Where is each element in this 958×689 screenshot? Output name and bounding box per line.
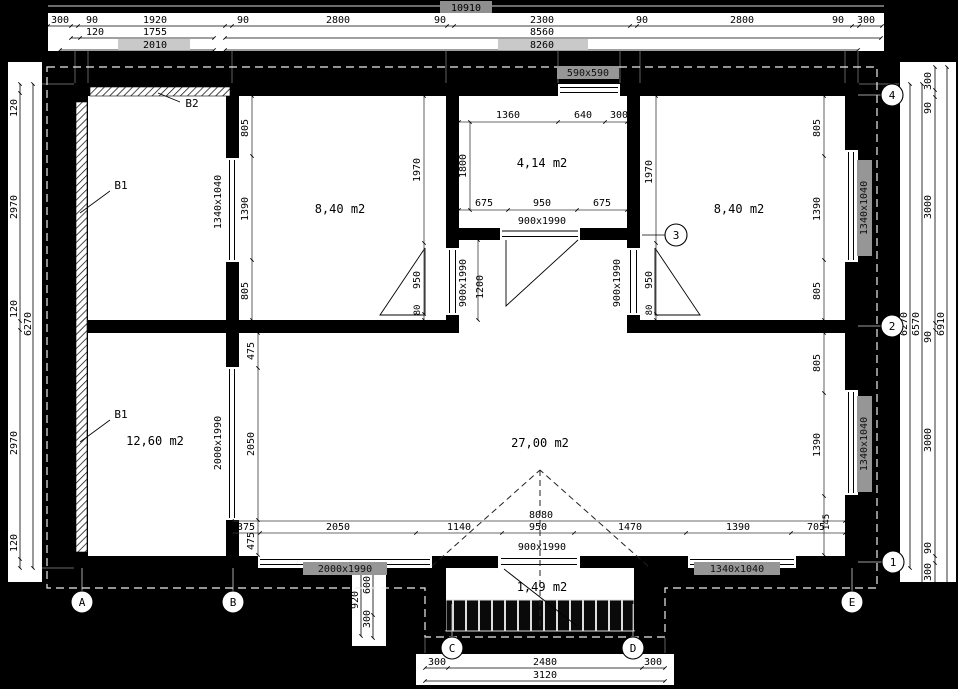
dim-label: 300 bbox=[923, 72, 934, 90]
room-area-label: 8,40 m2 bbox=[315, 202, 366, 216]
dim-label: 80 bbox=[413, 305, 423, 316]
dim-label: 600 bbox=[362, 576, 373, 594]
dim-label: 1390 bbox=[812, 433, 823, 457]
wall-b1-hatch bbox=[76, 102, 87, 552]
dim-label: 300 bbox=[857, 15, 875, 26]
opening-label[interactable]: 590x590 bbox=[567, 68, 609, 79]
grid-bubble-label: D bbox=[630, 642, 637, 655]
dim-label: 8080 bbox=[529, 510, 553, 521]
grid-bubble-label: A bbox=[79, 596, 86, 609]
dim-label: 90 bbox=[636, 15, 648, 26]
dim-label: 2010 bbox=[143, 40, 167, 51]
dim-label: 805 bbox=[812, 119, 823, 137]
grid-bubble-label: B bbox=[230, 596, 237, 609]
dim-label: 145 bbox=[822, 514, 832, 530]
dim-label: 90 bbox=[923, 102, 934, 114]
dim-label: 90 bbox=[832, 15, 844, 26]
opening-label: 2000x1990 bbox=[213, 416, 224, 470]
dim-label: 1800 bbox=[458, 154, 469, 178]
dim-label: 300 bbox=[923, 563, 934, 581]
grid-bubble-label: E bbox=[849, 596, 856, 609]
dim-label: 805 bbox=[240, 282, 251, 300]
dim-label: 1470 bbox=[618, 522, 642, 533]
dim-label: 3120 bbox=[533, 670, 557, 681]
grid-bubble-label: 2 bbox=[889, 320, 896, 333]
wall-tag-label: B1 bbox=[114, 408, 127, 421]
dim-label: 2050 bbox=[246, 432, 257, 456]
dim-label: 8260 bbox=[530, 40, 554, 51]
dim-label: 300 bbox=[362, 610, 373, 628]
room-area-label: 1,49 m2 bbox=[517, 580, 568, 594]
dim-label: 950 bbox=[412, 271, 423, 289]
dim-label: 950 bbox=[644, 271, 655, 289]
dim-label: 300 bbox=[428, 657, 446, 668]
room-area-label: 4,14 m2 bbox=[517, 156, 568, 170]
dim-label: 8560 bbox=[530, 27, 554, 38]
opening-label: 900x1990 bbox=[458, 259, 469, 307]
room-area-label: 8,40 m2 bbox=[714, 202, 765, 216]
opening-label[interactable]: 1340x1040 bbox=[859, 181, 870, 235]
dim-label: 120 bbox=[86, 27, 104, 38]
wall-tag-label: B1 bbox=[114, 179, 127, 192]
dim-label: 675 bbox=[475, 198, 493, 209]
dim-label: 805 bbox=[812, 354, 823, 372]
dim-label: 1390 bbox=[726, 522, 750, 533]
dim-label: 475 bbox=[246, 532, 257, 550]
dim-label: 120 bbox=[9, 99, 20, 117]
dim-label: 1920 bbox=[143, 15, 167, 26]
opening-label: 1340x1040 bbox=[213, 175, 224, 229]
grid-bubble-label: 4 bbox=[889, 89, 896, 102]
dim-label: 90 bbox=[86, 15, 98, 26]
grid-bubble-label: C bbox=[449, 642, 456, 655]
dim-label: 90 bbox=[237, 15, 249, 26]
opening-label[interactable]: 1340x1040 bbox=[859, 417, 870, 471]
dim-label: 90 bbox=[923, 331, 934, 343]
dim-label: 6270 bbox=[23, 312, 34, 336]
dim-label: 300 bbox=[644, 657, 662, 668]
dim-label: 950 bbox=[533, 198, 551, 209]
dim-label: 6910 bbox=[936, 312, 947, 336]
left-dimension-strip: 120 2970 120 2970 120 6270 bbox=[8, 62, 42, 582]
dim-label: 300 bbox=[610, 110, 628, 121]
right-dimension-strip: 300 90 3000 90 3000 90 300 6270 6570 691… bbox=[899, 62, 956, 588]
dim-label: 640 bbox=[574, 110, 592, 121]
dim-label: 3000 bbox=[923, 195, 934, 219]
dim-label: 300 bbox=[51, 15, 69, 26]
dim-label: 90 bbox=[434, 15, 446, 26]
dim-label: 2480 bbox=[533, 657, 557, 668]
wall-tag-label: B2 bbox=[185, 97, 198, 110]
dim-label: 1360 bbox=[496, 110, 520, 121]
opening-label[interactable]: 2000x1990 bbox=[318, 564, 372, 575]
dim-label: 1140 bbox=[447, 522, 471, 533]
dim-label: 805 bbox=[240, 119, 251, 137]
dim-label: 2300 bbox=[530, 15, 554, 26]
opening-label: 900x1990 bbox=[518, 542, 566, 553]
dim-label: 1390 bbox=[240, 197, 251, 221]
dim-label: 1390 bbox=[812, 197, 823, 221]
dim-label: 2970 bbox=[9, 431, 20, 455]
dim-label: 2970 bbox=[9, 195, 20, 219]
dim-label: 10910 bbox=[451, 3, 481, 14]
dim-label: 950 bbox=[529, 522, 547, 533]
dim-label: 2800 bbox=[326, 15, 350, 26]
wall-b2-hatch bbox=[90, 87, 230, 96]
floor-plan-canvas: 10910 300 90 1920 90 2800 90 2300 90 280… bbox=[0, 0, 958, 689]
opening-label: 900x1990 bbox=[612, 259, 623, 307]
dim-label: 920 bbox=[350, 591, 361, 609]
opening-label: 900x1990 bbox=[518, 216, 566, 227]
dim-label: 90 bbox=[923, 542, 934, 554]
opening-label[interactable]: 1340x1040 bbox=[710, 564, 764, 575]
dim-label: 120 bbox=[9, 300, 20, 318]
grid-bubble-label: 1 bbox=[890, 556, 897, 569]
room-area-label: 12,60 m2 bbox=[126, 434, 184, 448]
dim-label: 6570 bbox=[911, 312, 922, 336]
dim-label: 805 bbox=[812, 282, 823, 300]
dim-label: 2800 bbox=[730, 15, 754, 26]
dim-label: 1755 bbox=[143, 27, 167, 38]
floor-plan-page: 10910 300 90 1920 90 2800 90 2300 90 280… bbox=[0, 0, 958, 689]
dim-label: 375 bbox=[237, 522, 255, 533]
dim-label: 475 bbox=[246, 342, 257, 360]
dim-label: 675 bbox=[593, 198, 611, 209]
dim-label: 1970 bbox=[644, 160, 655, 184]
dim-label: 2050 bbox=[326, 522, 350, 533]
dim-label: 1970 bbox=[412, 158, 423, 182]
grid-bubble-label: 3 bbox=[673, 229, 680, 242]
room-area-label: 27,00 m2 bbox=[511, 436, 569, 450]
dim-label: 120 bbox=[9, 534, 20, 552]
dim-label: 1200 bbox=[475, 275, 486, 299]
dim-label: 80 bbox=[645, 305, 655, 316]
dim-label: 3000 bbox=[923, 428, 934, 452]
